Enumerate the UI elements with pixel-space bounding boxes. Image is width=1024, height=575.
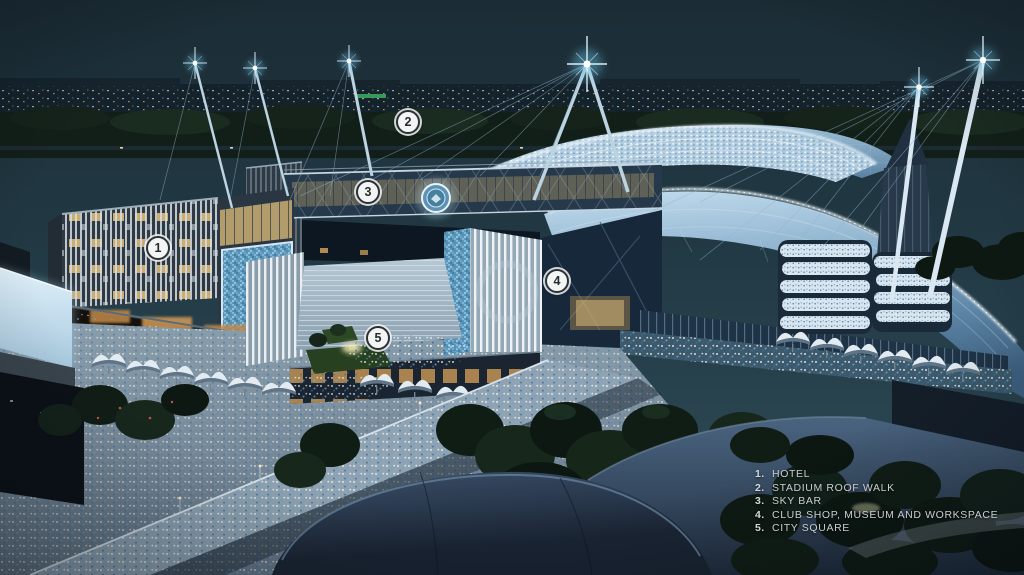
legend-item-label: CITY SQUARE: [772, 522, 850, 534]
legend-item-number: 5.: [755, 522, 772, 534]
legend-item-hotel: 1. HOTEL: [755, 468, 998, 480]
legend-item-number: 3.: [755, 495, 772, 507]
legend-item-label: STADIUM ROOF WALK: [772, 482, 895, 494]
legend-item-number: 2.: [755, 482, 772, 494]
legend-item-label: SKY BAR: [772, 495, 822, 507]
callout-marker-2: 2: [396, 110, 420, 134]
legend-item-sky-bar: 3. SKY BAR: [755, 495, 998, 507]
callout-marker-3-number: 3: [365, 185, 372, 199]
legend-item-club-shop-museum-workspace: 4. CLUB SHOP, MUSEUM AND WORKSPACE: [755, 509, 998, 521]
legend-item-label: CLUB SHOP, MUSEUM AND WORKSPACE: [772, 509, 998, 521]
stadium-render-page: 1 2 3 4 5 1. HOTEL 2. STADIUM ROOF WALK …: [0, 0, 1024, 575]
callout-marker-5: 5: [366, 326, 390, 350]
callout-marker-5-number: 5: [375, 331, 382, 345]
callout-marker-1: 1: [146, 236, 170, 260]
legend-item-stadium-roof-walk: 2. STADIUM ROOF WALK: [755, 482, 998, 494]
callout-marker-1-number: 1: [155, 241, 162, 255]
legend-item-number: 4.: [755, 509, 772, 521]
callout-marker-2-number: 2: [405, 115, 412, 129]
legend-item-number: 1.: [755, 468, 772, 480]
callout-marker-4-number: 4: [554, 274, 561, 288]
legend-item-city-square: 5. CITY SQUARE: [755, 522, 998, 534]
callout-marker-3: 3: [356, 180, 380, 204]
legend-item-label: HOTEL: [772, 468, 810, 480]
legend: 1. HOTEL 2. STADIUM ROOF WALK 3. SKY BAR…: [755, 468, 998, 536]
callout-marker-4: 4: [545, 269, 569, 293]
